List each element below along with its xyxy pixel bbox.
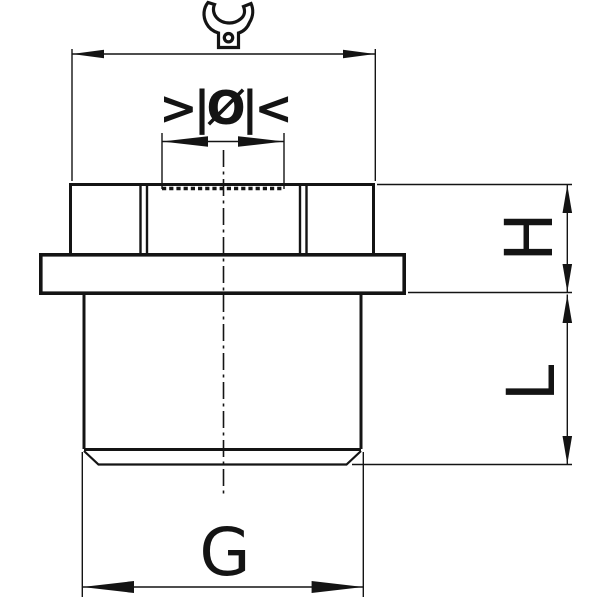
arrowhead-right [312,581,364,593]
arrowhead-up [563,295,573,323]
arrowhead-left [82,581,134,593]
arrowhead-left [72,50,104,59]
arrowhead-up [563,185,573,213]
cable-diameter-range-icon: >|Ø|< [159,81,289,136]
chamfer-edge [84,451,361,465]
arrowhead-left [162,136,208,147]
height-label: H [491,212,568,262]
arrowhead-right [343,50,375,59]
drawing-surface: >|Ø|< H L G [0,0,600,600]
arrowhead-down [563,264,573,292]
arrowhead-right [238,136,284,147]
technical-drawing: >|Ø|< H L G [0,0,600,600]
part-outline [41,150,404,497]
wrench-icon [204,3,253,48]
arrowhead-down [563,436,573,464]
flange-outline [41,255,404,293]
hex-nut-outline [71,185,374,254]
thread-size-label: G [199,514,250,591]
length-label: L [493,364,570,401]
